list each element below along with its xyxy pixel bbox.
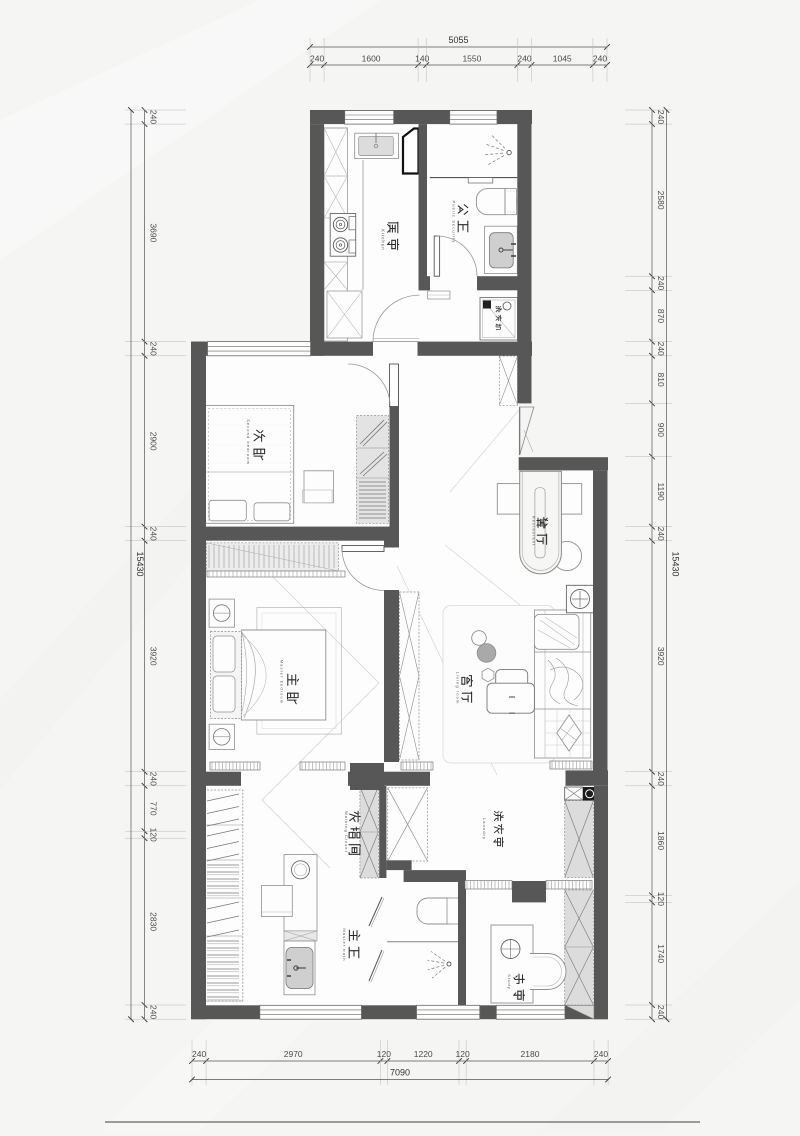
svg-text:2970: 2970	[284, 1049, 303, 1059]
svg-text:240: 240	[310, 54, 324, 64]
svg-text:Walking Closet: Walking Closet	[344, 811, 349, 853]
svg-text:120: 120	[456, 1049, 470, 1059]
svg-text:2830: 2830	[149, 912, 159, 931]
svg-text:Restaurant: Restaurant	[532, 516, 537, 547]
svg-text:1740: 1740	[656, 944, 666, 963]
svg-text:15430: 15430	[671, 551, 681, 576]
svg-text:1190: 1190	[656, 482, 666, 501]
svg-text:240: 240	[149, 1005, 159, 1019]
svg-text:240: 240	[594, 1049, 608, 1059]
svg-text:240: 240	[656, 276, 666, 290]
svg-text:5055: 5055	[448, 35, 468, 45]
svg-text:240: 240	[593, 54, 607, 64]
svg-text:240: 240	[149, 342, 159, 356]
svg-text:3690: 3690	[149, 223, 159, 242]
svg-text:1550: 1550	[462, 54, 481, 64]
svg-text:Laundry: Laundry	[482, 818, 487, 840]
svg-text:240: 240	[149, 110, 159, 124]
svg-text:Public Security: Public Security	[452, 201, 457, 244]
svg-text:3920: 3920	[656, 647, 666, 666]
svg-text:Master bath: Master bath	[342, 928, 347, 961]
svg-text:Second bedroom: Second bedroom	[246, 419, 251, 465]
svg-text:140: 140	[415, 54, 429, 64]
svg-text:240: 240	[656, 110, 666, 124]
svg-text:3920: 3920	[149, 647, 159, 666]
svg-text:240: 240	[656, 342, 666, 356]
svg-text:15430: 15430	[135, 551, 145, 576]
svg-text:Study: Study	[507, 974, 512, 990]
svg-text:240: 240	[517, 54, 531, 64]
svg-text:770: 770	[149, 801, 159, 815]
svg-text:7090: 7090	[390, 1068, 410, 1078]
svg-text:120: 120	[377, 1049, 391, 1059]
svg-text:Kitchen: Kitchen	[381, 229, 386, 251]
svg-text:120: 120	[656, 892, 666, 906]
svg-text:Master bedroom: Master bedroom	[280, 660, 285, 705]
svg-text:240: 240	[149, 527, 159, 541]
svg-text:1220: 1220	[414, 1049, 433, 1059]
svg-text:240: 240	[656, 527, 666, 541]
svg-text:900: 900	[656, 423, 666, 437]
svg-text:240: 240	[656, 772, 666, 786]
svg-text:1045: 1045	[553, 54, 572, 64]
svg-text:240: 240	[192, 1049, 206, 1059]
svg-text:1860: 1860	[656, 831, 666, 850]
svg-text:870: 870	[656, 309, 666, 323]
svg-text:Living room: Living room	[456, 672, 461, 705]
svg-text:2580: 2580	[656, 191, 666, 210]
svg-text:2180: 2180	[521, 1049, 540, 1059]
svg-text:120: 120	[149, 828, 159, 842]
svg-text:810: 810	[656, 373, 666, 387]
svg-text:2900: 2900	[149, 432, 159, 451]
svg-text:1600: 1600	[362, 54, 381, 64]
svg-text:240: 240	[149, 772, 159, 786]
